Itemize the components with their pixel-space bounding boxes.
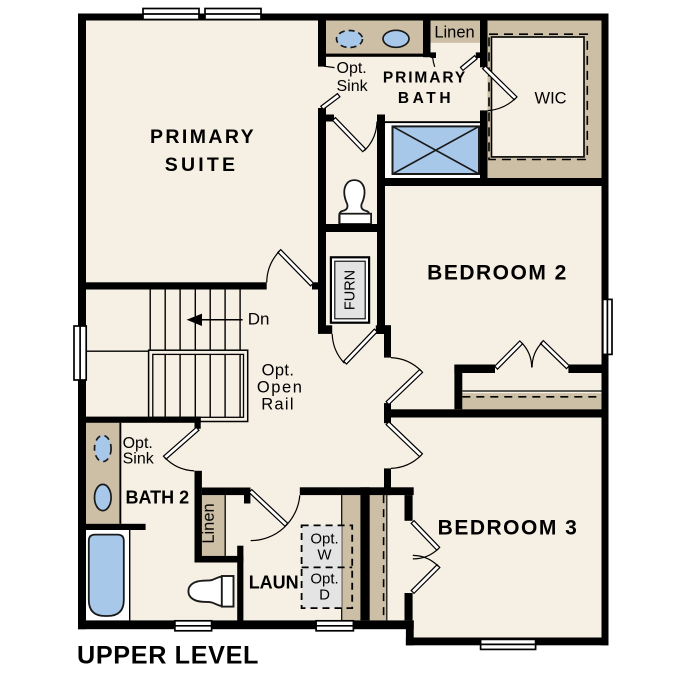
svg-text:BATH: BATH [398,90,454,107]
svg-text:WIC: WIC [535,90,567,108]
svg-text:Open: Open [257,379,304,397]
svg-text:Opt.: Opt. [337,60,367,77]
svg-text:UPPER LEVEL: UPPER LEVEL [77,641,259,669]
svg-text:Rail: Rail [261,396,295,414]
svg-text:Sink: Sink [337,78,369,95]
svg-text:Linen: Linen [200,503,218,543]
svg-text:Opt.: Opt. [123,435,153,452]
svg-text:Opt.: Opt. [310,531,338,548]
svg-text:Opt.: Opt. [310,571,338,588]
svg-text:PRIMARY: PRIMARY [383,70,467,87]
svg-text:BATH 2: BATH 2 [126,488,190,508]
svg-text:Sink: Sink [123,451,155,468]
svg-text:Opt.: Opt. [262,361,295,379]
svg-text:BEDROOM 2: BEDROOM 2 [427,262,568,285]
svg-text:D: D [319,587,330,604]
svg-text:Linen: Linen [434,24,474,42]
svg-text:Dn: Dn [248,310,270,329]
svg-text:SUITE: SUITE [165,154,238,176]
svg-text:BEDROOM 3: BEDROOM 3 [438,516,579,539]
svg-text:LAUN: LAUN [249,572,299,592]
svg-text:PRIMARY: PRIMARY [150,126,256,148]
svg-text:W: W [317,547,332,564]
svg-text:FURN: FURN [343,270,359,310]
